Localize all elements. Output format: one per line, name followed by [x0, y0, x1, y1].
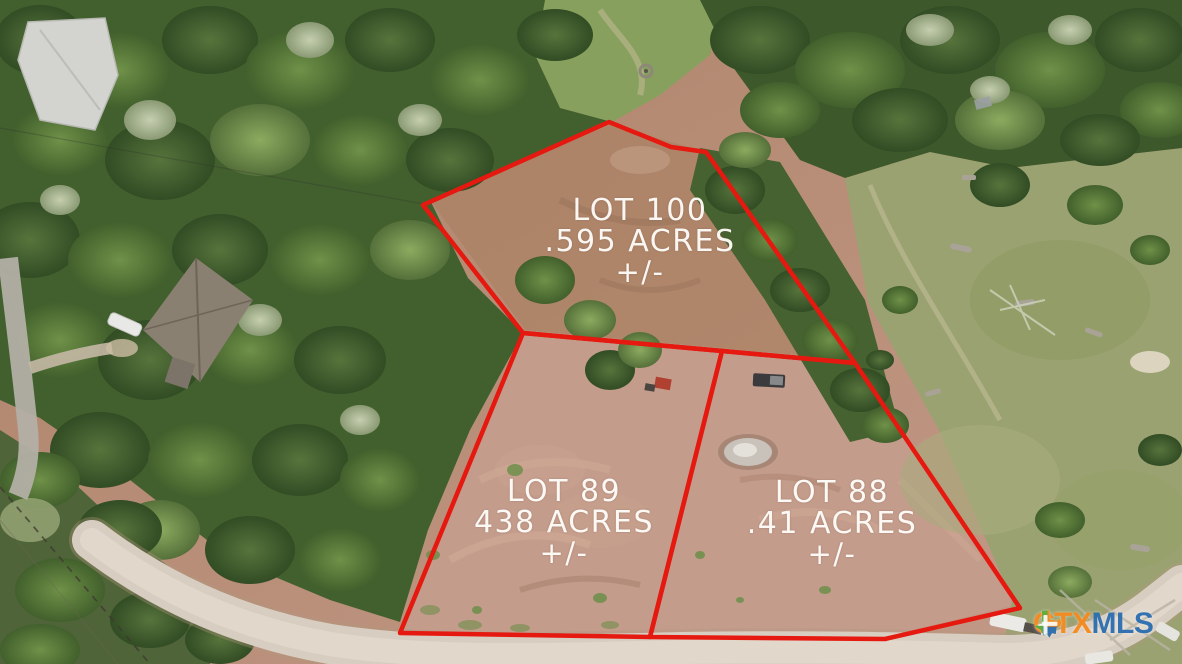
lot-boundary-overlay — [0, 0, 1182, 664]
lot-100-boundary — [423, 122, 855, 363]
lot-89-boundary — [400, 333, 722, 637]
aerial-lot-photo: LOT 100 .595 ACRES +/- LOT 89 438 ACRES … — [0, 0, 1182, 664]
lot-88-boundary — [650, 351, 1020, 639]
texas-state-icon — [1033, 607, 1062, 641]
mls-watermark: CTXMLS — [1033, 607, 1153, 641]
watermark-mls-text: MLS — [1092, 607, 1154, 641]
